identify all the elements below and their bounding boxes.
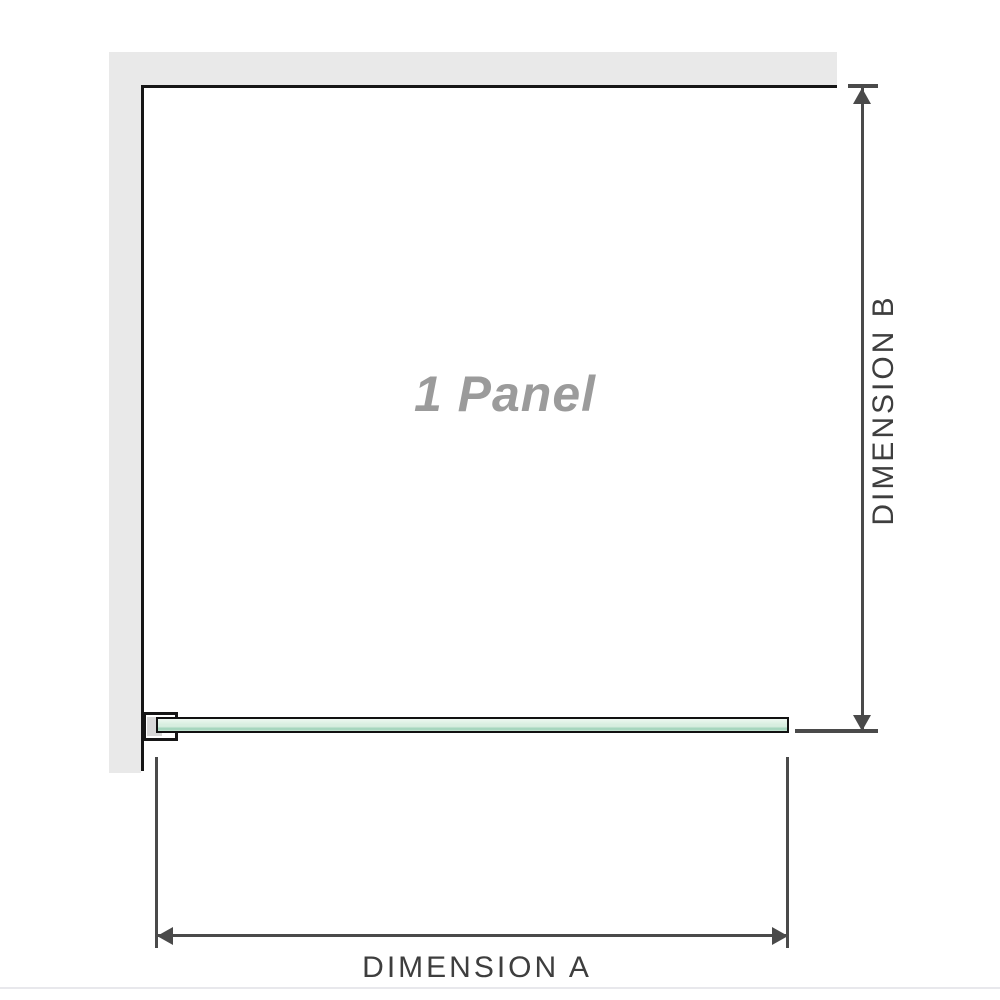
dimension-b-line [861, 88, 864, 731]
panel-outline-top [141, 85, 837, 88]
wall-top [109, 52, 837, 85]
dimension-b-label: DIMENSION B [867, 294, 901, 525]
dimension-a-extension-right [786, 757, 789, 948]
dimension-a-line [157, 934, 788, 937]
dimension-diagram: 1 Panel DIMENSION B DIMENSION A [0, 0, 1000, 1000]
bottom-divider [0, 987, 1000, 989]
dimension-a-label: DIMENSION A [362, 951, 592, 985]
panel-label: 1 Panel [414, 365, 596, 423]
dimension-a-extension-left [155, 757, 158, 948]
panel-outline-left [141, 85, 144, 771]
glass-panel-bar [156, 717, 789, 733]
arrow-left-icon [157, 927, 173, 945]
arrow-right-icon [772, 927, 788, 945]
arrow-down-icon [853, 715, 871, 731]
wall-left [109, 52, 141, 773]
arrow-up-icon [853, 88, 871, 104]
